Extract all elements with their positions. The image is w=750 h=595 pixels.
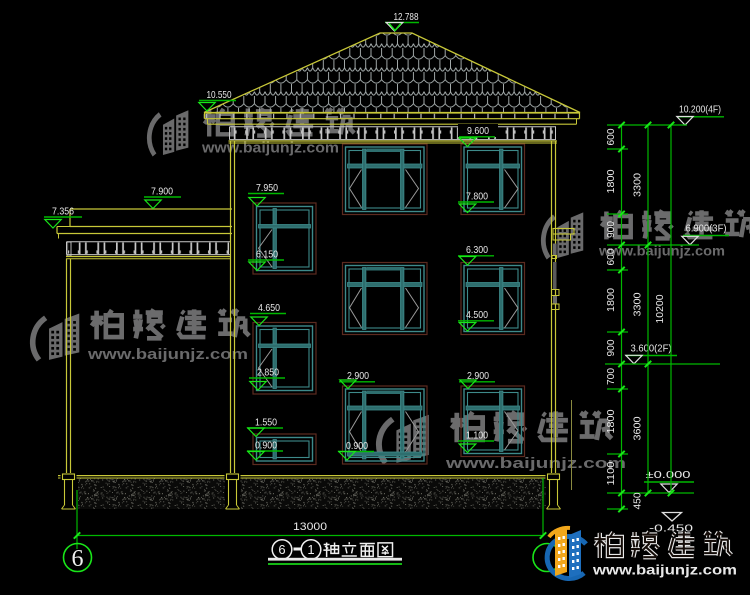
svg-text:10200: 10200 <box>654 294 666 323</box>
svg-text:±0.000: ±0.000 <box>646 469 691 481</box>
svg-text:7.900: 7.900 <box>151 186 173 198</box>
svg-text:1.100: 1.100 <box>466 430 488 442</box>
svg-text:9.600: 9.600 <box>467 125 489 137</box>
svg-text:6: 6 <box>278 542 285 557</box>
svg-text:13000: 13000 <box>293 521 327 533</box>
svg-text:1800: 1800 <box>605 288 617 312</box>
svg-text:600: 600 <box>605 128 617 145</box>
svg-text:7.356: 7.356 <box>52 206 74 218</box>
svg-text:6.150: 6.150 <box>256 249 278 261</box>
svg-text:900: 900 <box>605 221 617 238</box>
svg-text:600: 600 <box>605 248 617 265</box>
svg-text:3.600(2F): 3.600(2F) <box>631 343 672 355</box>
svg-text:6.900(3F): 6.900(3F) <box>686 223 727 235</box>
svg-text:2.850: 2.850 <box>257 367 279 379</box>
svg-text:3600: 3600 <box>632 416 644 440</box>
svg-text:0.900: 0.900 <box>255 440 277 452</box>
svg-text:4.650: 4.650 <box>258 302 280 314</box>
svg-text:7.950: 7.950 <box>256 182 278 194</box>
svg-text:700: 700 <box>605 368 617 385</box>
svg-text:1: 1 <box>307 542 314 557</box>
svg-text:3300: 3300 <box>632 173 644 197</box>
svg-text:4.500: 4.500 <box>466 309 488 321</box>
svg-text:1800: 1800 <box>605 409 617 433</box>
svg-text:6.300: 6.300 <box>466 244 488 256</box>
svg-text:1100: 1100 <box>605 461 617 485</box>
svg-text:10.550: 10.550 <box>207 89 232 101</box>
svg-text:www.baijunjz.com: www.baijunjz.com <box>592 563 737 578</box>
svg-text:www.baijunjz.com: www.baijunjz.com <box>445 455 626 472</box>
svg-text:1.550: 1.550 <box>255 417 277 429</box>
svg-text:1800: 1800 <box>605 169 617 193</box>
svg-text:0.900: 0.900 <box>346 440 368 452</box>
svg-text:3300: 3300 <box>632 292 644 316</box>
svg-text:12.788: 12.788 <box>394 11 419 23</box>
svg-text:6: 6 <box>72 546 84 572</box>
svg-text:www.baijunjz.com: www.baijunjz.com <box>87 347 248 363</box>
svg-text:10.200(4F): 10.200(4F) <box>679 104 721 116</box>
svg-text:7.800: 7.800 <box>466 191 488 203</box>
svg-text:450: 450 <box>632 492 644 509</box>
svg-text:900: 900 <box>605 339 617 356</box>
